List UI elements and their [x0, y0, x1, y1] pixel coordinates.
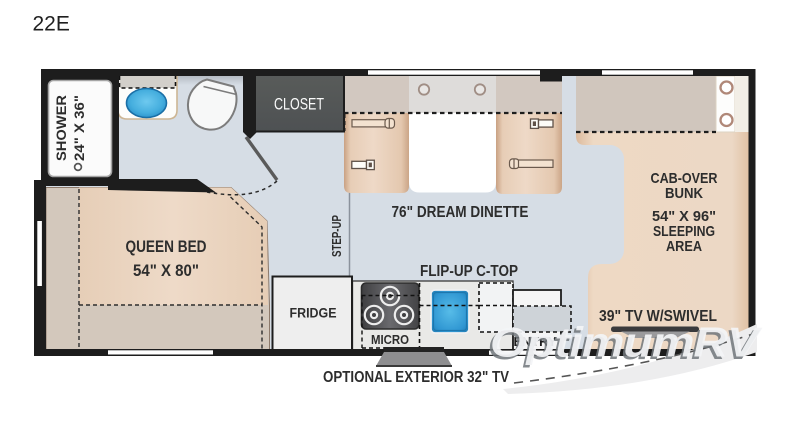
svg-text:24" X 36": 24" X 36"	[72, 95, 87, 161]
svg-text:CLOSET: CLOSET	[274, 96, 324, 114]
svg-text:OPTIONAL EXTERIOR 32" TV: OPTIONAL EXTERIOR 32" TV	[323, 369, 509, 386]
svg-text:STEP-UP: STEP-UP	[330, 215, 344, 257]
svg-text:22E: 22E	[33, 13, 70, 36]
svg-text:MICRO: MICRO	[371, 332, 409, 347]
svg-text:FLIP-UP C-TOP: FLIP-UP C-TOP	[420, 263, 518, 280]
svg-text:54" X 80": 54" X 80"	[133, 261, 199, 280]
svg-text:QUEEN BED: QUEEN BED	[126, 237, 207, 256]
svg-text:FRIDGE: FRIDGE	[290, 306, 337, 321]
svg-text:SHOWER: SHOWER	[54, 95, 69, 161]
svg-text:76" DREAM DINETTE: 76" DREAM DINETTE	[392, 204, 529, 221]
svg-text:OptimumRV: OptimumRV	[490, 319, 763, 366]
svg-text:BUNK: BUNK	[665, 185, 703, 202]
svg-text:AREA: AREA	[666, 238, 702, 255]
